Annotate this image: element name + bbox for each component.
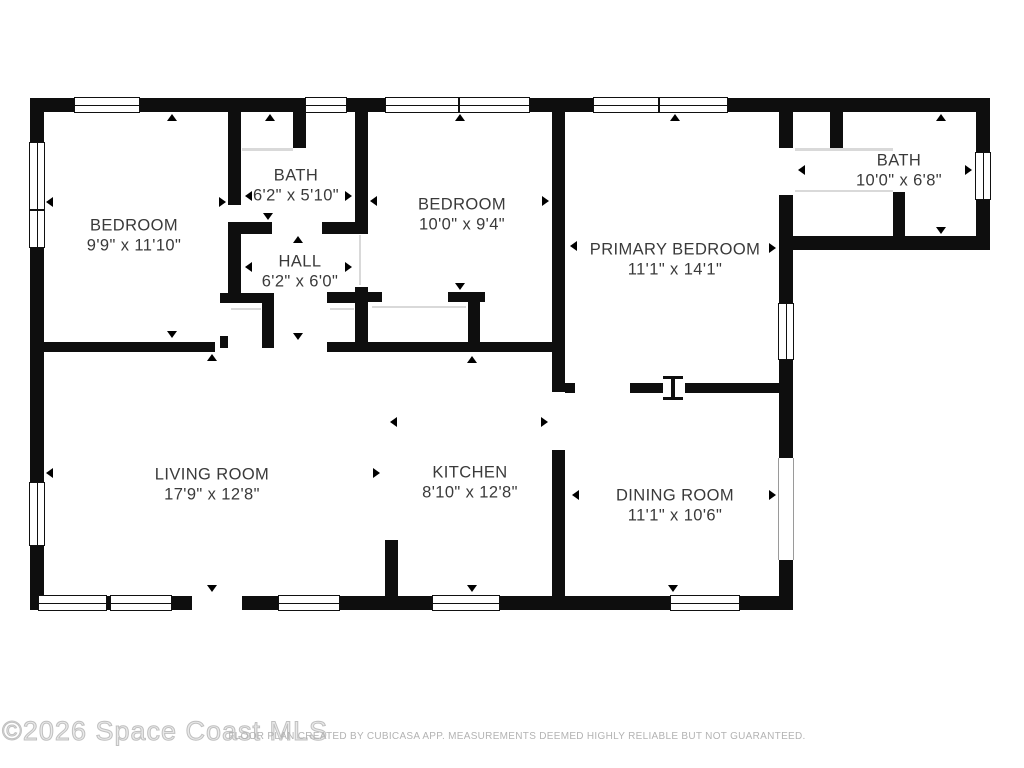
room-dims: 10'0" x 6'8": [856, 171, 942, 191]
wall: [355, 112, 368, 233]
fixture-line: [231, 308, 261, 310]
window: [110, 595, 172, 611]
measure-arrow-right: [542, 196, 549, 206]
wall: [327, 292, 355, 303]
measure-arrow-left: [46, 468, 53, 478]
window-pane-line: [37, 143, 38, 247]
measure-arrow-left: [370, 196, 377, 206]
front-door-opening: [192, 595, 242, 611]
measure-arrow-right: [769, 243, 776, 253]
room-label-bath-2: BATH 10'0" x 6'8": [856, 152, 942, 191]
window: [975, 152, 991, 200]
measure-arrow-down: [293, 333, 303, 340]
wall: [893, 192, 905, 236]
measure-arrow-right: [345, 191, 352, 201]
measure-arrow-left: [46, 197, 53, 207]
fixture-line: [359, 235, 361, 285]
room-name: BATH: [856, 152, 942, 172]
measure-arrow-right: [965, 165, 972, 175]
wall: [368, 292, 382, 302]
window-pane-line: [75, 105, 139, 106]
window-pane-line: [111, 603, 171, 604]
measure-arrow-left: [572, 490, 579, 500]
window-pane-line: [37, 483, 38, 545]
window-divider: [458, 98, 460, 112]
room-label-kitchen: KITCHEN 8'10" x 12'8": [422, 464, 518, 503]
wall: [468, 297, 480, 348]
measure-arrow-up: [936, 114, 946, 121]
disclaimer-text: FLOOR PLAN CREATED BY CUBICASA APP. MEAS…: [0, 731, 1024, 742]
window: [38, 595, 107, 611]
wall: [683, 383, 779, 393]
measure-arrow-left: [245, 191, 252, 201]
room-name: KITCHEN: [422, 464, 518, 484]
room-dims: 11'1" x 10'6": [616, 506, 734, 526]
room-label-bedroom-2: BEDROOM 10'0" x 9'4": [418, 196, 506, 235]
measure-arrow-right: [541, 417, 548, 427]
wall: [552, 112, 565, 392]
window-pane-line: [786, 304, 787, 359]
room-dims: 10'0" x 9'4": [418, 215, 506, 235]
wall: [385, 540, 398, 596]
fixture-line: [330, 308, 354, 310]
measure-arrow-down: [467, 585, 477, 592]
measure-arrow-up: [670, 114, 680, 121]
room-dims: 6'2" x 6'0": [262, 272, 339, 292]
window: [593, 97, 728, 113]
measure-arrow-left: [245, 262, 252, 272]
window: [29, 482, 45, 546]
measure-arrow-right: [769, 490, 776, 500]
room-name: HALL: [262, 253, 339, 273]
door-marker: [663, 376, 683, 379]
wall: [220, 336, 228, 348]
window-pane-line: [433, 603, 499, 604]
room-dims: 6'2" x 5'10": [253, 186, 339, 206]
measure-arrow-up: [265, 114, 275, 121]
wall: [830, 112, 843, 148]
wall: [630, 383, 665, 393]
window-pane-line: [594, 105, 727, 106]
measure-arrow-left: [390, 417, 397, 427]
wall: [30, 342, 215, 352]
measure-arrow-left: [798, 165, 805, 175]
room-name: BEDROOM: [87, 217, 181, 237]
measure-arrow-right: [345, 262, 352, 272]
measure-arrow-down: [167, 331, 177, 338]
room-name: PRIMARY BEDROOM: [590, 241, 760, 261]
room-label-hall: HALL 6'2" x 6'0": [262, 253, 339, 292]
window: [305, 97, 347, 113]
measure-arrow-down: [668, 585, 678, 592]
room-dims: 11'1" x 14'1": [590, 260, 760, 280]
floor-plan-page: BEDROOM 9'9" x 11'10" BATH 6'2" x 5'10" …: [0, 0, 1024, 768]
wall: [228, 233, 241, 293]
wall: [293, 112, 306, 148]
room-label-primary-bedroom: PRIMARY BEDROOM 11'1" x 14'1": [590, 241, 760, 280]
measure-arrow-up: [293, 236, 303, 243]
wall: [779, 112, 793, 148]
measure-arrow-down: [455, 283, 465, 290]
wall: [565, 383, 575, 393]
dining-patio-opening: [778, 458, 794, 560]
room-label-bath-1: BATH 6'2" x 5'10": [253, 167, 339, 206]
room-label-bedroom-1: BEDROOM 9'9" x 11'10": [87, 217, 181, 256]
door-marker: [663, 397, 683, 400]
measure-arrow-up: [167, 114, 177, 121]
room-label-dining-room: DINING ROOM 11'1" x 10'6": [616, 487, 734, 526]
window: [432, 595, 500, 611]
measure-arrow-right: [373, 468, 380, 478]
window-pane-line: [983, 153, 984, 199]
room-name: LIVING ROOM: [155, 466, 269, 486]
room-name: DINING ROOM: [616, 487, 734, 507]
room-name: BEDROOM: [418, 196, 506, 216]
window: [29, 142, 45, 248]
room-dims: 17'9" x 12'8": [155, 485, 269, 505]
window: [74, 97, 140, 113]
wall: [779, 236, 990, 250]
window-pane-line: [306, 105, 346, 106]
wall: [228, 222, 272, 234]
measure-arrow-down: [936, 227, 946, 234]
wall: [262, 293, 274, 348]
fixture-line: [242, 148, 293, 151]
wall: [228, 112, 241, 205]
measure-arrow-right: [219, 197, 226, 207]
measure-arrow-left: [570, 241, 577, 251]
window: [670, 595, 740, 611]
window: [385, 97, 530, 113]
room-dims: 8'10" x 12'8": [422, 483, 518, 503]
fixture-line: [372, 306, 466, 308]
window-divider: [658, 98, 660, 112]
room-label-living-room: LIVING ROOM 17'9" x 12'8": [155, 466, 269, 505]
window: [278, 595, 340, 611]
room-dims: 9'9" x 11'10": [87, 236, 181, 256]
window-pane-line: [671, 603, 739, 604]
wall: [552, 450, 565, 596]
measure-arrow-down: [207, 585, 217, 592]
window: [778, 303, 794, 360]
measure-arrow-up: [467, 356, 477, 363]
window-divider: [30, 209, 44, 211]
window-pane-line: [39, 603, 106, 604]
window-pane-line: [279, 603, 339, 604]
measure-arrow-up: [455, 114, 465, 121]
measure-arrow-down: [263, 213, 273, 220]
wall: [779, 195, 793, 236]
room-name: BATH: [253, 167, 339, 187]
measure-arrow-up: [207, 354, 217, 361]
wall: [327, 342, 553, 352]
